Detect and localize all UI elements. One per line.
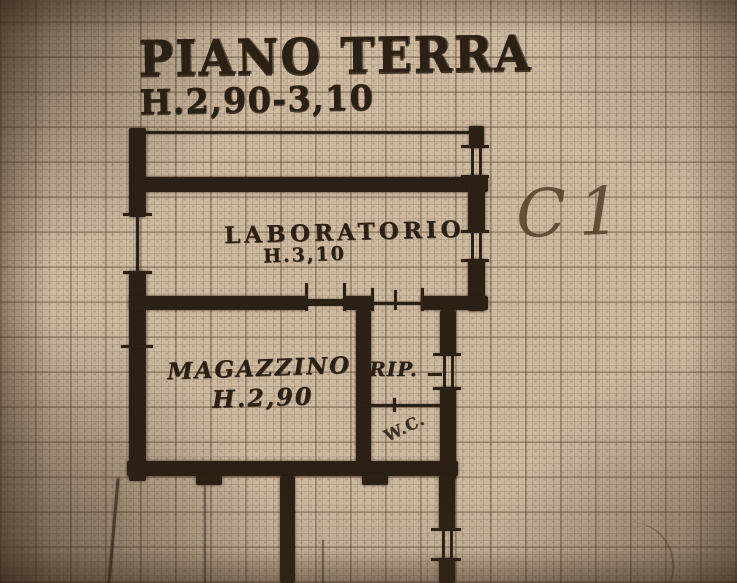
window-left-laboratorio <box>136 215 139 275</box>
wall-top <box>136 177 488 192</box>
window-sill-tick <box>431 528 461 531</box>
window-sill-tick <box>121 345 153 348</box>
faint-wall-line <box>322 540 324 583</box>
window-right-top <box>471 147 482 177</box>
door-notch <box>362 474 388 485</box>
wall-left-upper <box>129 128 146 217</box>
wall-mid-seg1 <box>129 296 306 310</box>
window-sill-tick <box>123 213 152 216</box>
room-height-magazzino: H.2,90 <box>212 384 314 412</box>
wall-stub-below-right-b <box>439 558 455 583</box>
window-sill-tick <box>461 145 489 148</box>
wall-right-lower-a <box>440 310 456 355</box>
partition-rip-wc <box>362 404 442 407</box>
room-label-ripostiglio: RIP. <box>369 359 418 379</box>
window-sill-tick <box>433 353 461 356</box>
door-notch <box>196 474 222 485</box>
rip-dash-mark <box>428 373 442 376</box>
window-right-rip <box>443 355 454 389</box>
plan-title: PIANO TERRA <box>138 29 532 83</box>
door-threshold-magazzino <box>306 299 346 306</box>
wall-mid-seg3 <box>421 296 488 310</box>
wall-top-edge-line <box>140 131 478 134</box>
wall-mid-seg2 <box>344 296 373 310</box>
faint-wall-line <box>204 484 206 583</box>
wall-divider-magazzino-rip <box>356 310 371 473</box>
wall-stub-below-left <box>280 476 295 583</box>
door-jamb-tick <box>371 288 374 311</box>
door-jamb-tick <box>394 290 397 310</box>
partition-tick <box>393 398 396 412</box>
room-height-laboratorio: H.3,10 <box>263 245 346 267</box>
window-right-laboratorio <box>471 232 482 261</box>
door-threshold-rip <box>373 302 423 305</box>
scanned-floor-plan: PIANO TERRA H.2,90-3,10 <box>0 0 737 583</box>
window-sill-tick <box>461 230 489 233</box>
plan-heights: H.2,90-3,10 <box>139 81 374 120</box>
wall-stub-below-right-a <box>439 476 455 530</box>
wall-right-upper-a <box>468 175 485 232</box>
wall-bottom <box>127 461 458 476</box>
window-stub-right <box>442 530 453 560</box>
handwritten-annotation-c1: C1 <box>515 178 634 248</box>
door-jamb-tick <box>305 283 308 311</box>
room-label-magazzino: MAGAZZINO <box>167 354 352 383</box>
